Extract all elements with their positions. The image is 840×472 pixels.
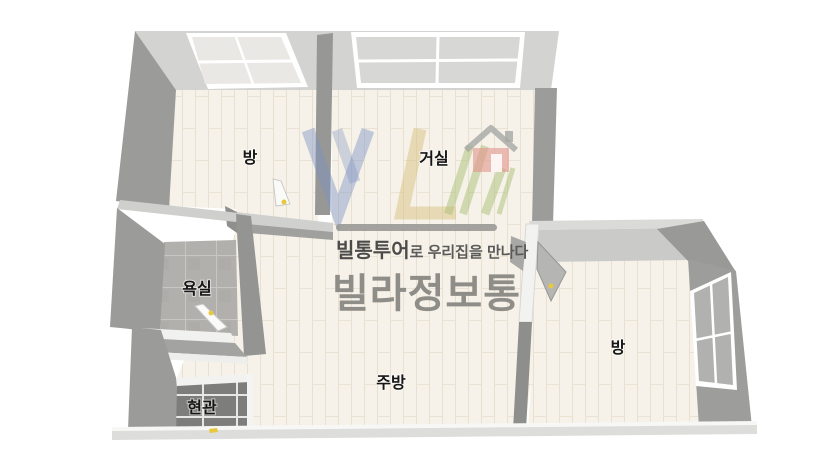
bathroom-west-wall bbox=[110, 208, 165, 332]
house-door bbox=[491, 154, 502, 172]
label-kitchen: 주방 bbox=[376, 374, 406, 392]
floor-plan-canvas: 빌통투어로 우리집을 만나다 빌라정보통 방 거실 욕실 현관 주방 방 bbox=[0, 0, 840, 472]
room-right-door-handle bbox=[549, 284, 554, 289]
room-top-left-door-handle bbox=[282, 200, 287, 205]
watermark-brand-name: 빌라정보통 bbox=[332, 272, 521, 316]
label-bathroom: 욕실 bbox=[182, 280, 211, 298]
living-room-east-wall bbox=[532, 88, 557, 225]
watermark-tagline-rest: 로 우리집을 만나다 bbox=[410, 243, 529, 261]
entrance-wall-end-cap bbox=[247, 374, 253, 430]
label-room-top-left: 방 bbox=[243, 149, 258, 167]
watermark-tagline-brand: 빌통투어 bbox=[336, 239, 410, 262]
living-room-window bbox=[351, 32, 525, 88]
label-room-right: 방 bbox=[611, 339, 626, 357]
label-entrance: 현관 bbox=[187, 398, 217, 417]
room-right-window bbox=[690, 272, 737, 390]
window-mullion-v bbox=[437, 37, 438, 83]
floor-plan-render: 빌통투어로 우리집을 만나다 빌라정보통 방 거실 욕실 현관 주방 방 bbox=[0, 0, 840, 472]
bathroom-door-handle bbox=[209, 311, 214, 316]
watermark-divider-bar bbox=[336, 224, 497, 231]
label-living-room: 거실 bbox=[419, 150, 448, 168]
